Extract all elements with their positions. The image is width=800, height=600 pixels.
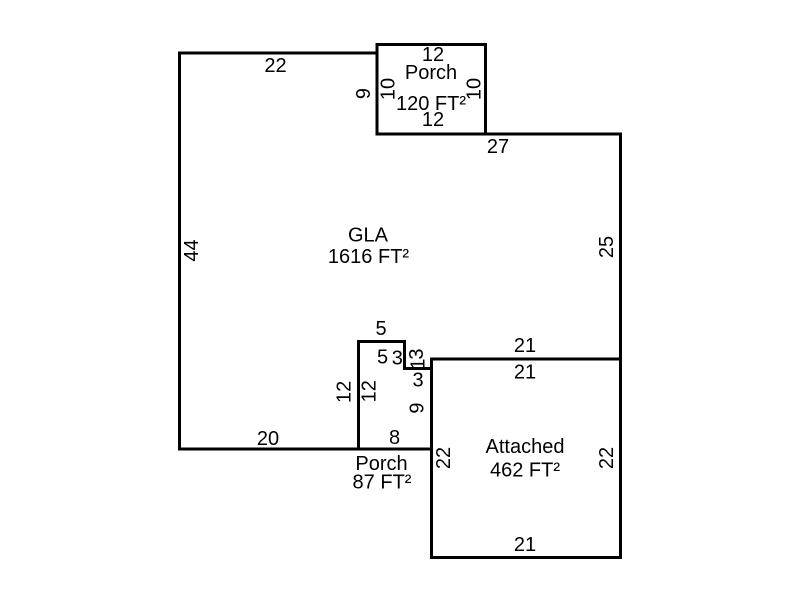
svg-text:9: 9	[353, 88, 375, 99]
svg-text:22: 22	[596, 447, 618, 469]
svg-text:22: 22	[433, 447, 455, 469]
svg-text:3: 3	[392, 348, 403, 370]
svg-text:8: 8	[389, 427, 400, 449]
svg-text:21: 21	[514, 362, 536, 384]
svg-text:5: 5	[377, 347, 388, 369]
svg-text:87 FT²: 87 FT²	[353, 472, 412, 494]
svg-text:462 FT²: 462 FT²	[490, 460, 560, 482]
svg-text:1616 FT²: 1616 FT²	[328, 246, 409, 268]
svg-text:10: 10	[464, 78, 486, 100]
svg-text:21: 21	[514, 534, 536, 556]
svg-text:GLA: GLA	[348, 225, 389, 247]
svg-text:21: 21	[514, 335, 536, 357]
svg-text:27: 27	[487, 136, 509, 158]
svg-text:25: 25	[596, 236, 618, 258]
svg-text:3: 3	[406, 348, 428, 359]
svg-text:22: 22	[264, 55, 286, 77]
svg-text:44: 44	[181, 239, 203, 261]
svg-text:5: 5	[375, 318, 386, 340]
svg-text:3: 3	[412, 370, 423, 392]
svg-text:12: 12	[422, 109, 444, 131]
svg-text:9: 9	[407, 402, 429, 413]
svg-text:Attached: Attached	[486, 436, 565, 458]
svg-text:12: 12	[334, 381, 356, 403]
svg-text:20: 20	[257, 428, 279, 450]
svg-text:12: 12	[359, 380, 381, 402]
svg-text:1: 1	[408, 358, 430, 369]
svg-text:Porch: Porch	[405, 62, 457, 84]
